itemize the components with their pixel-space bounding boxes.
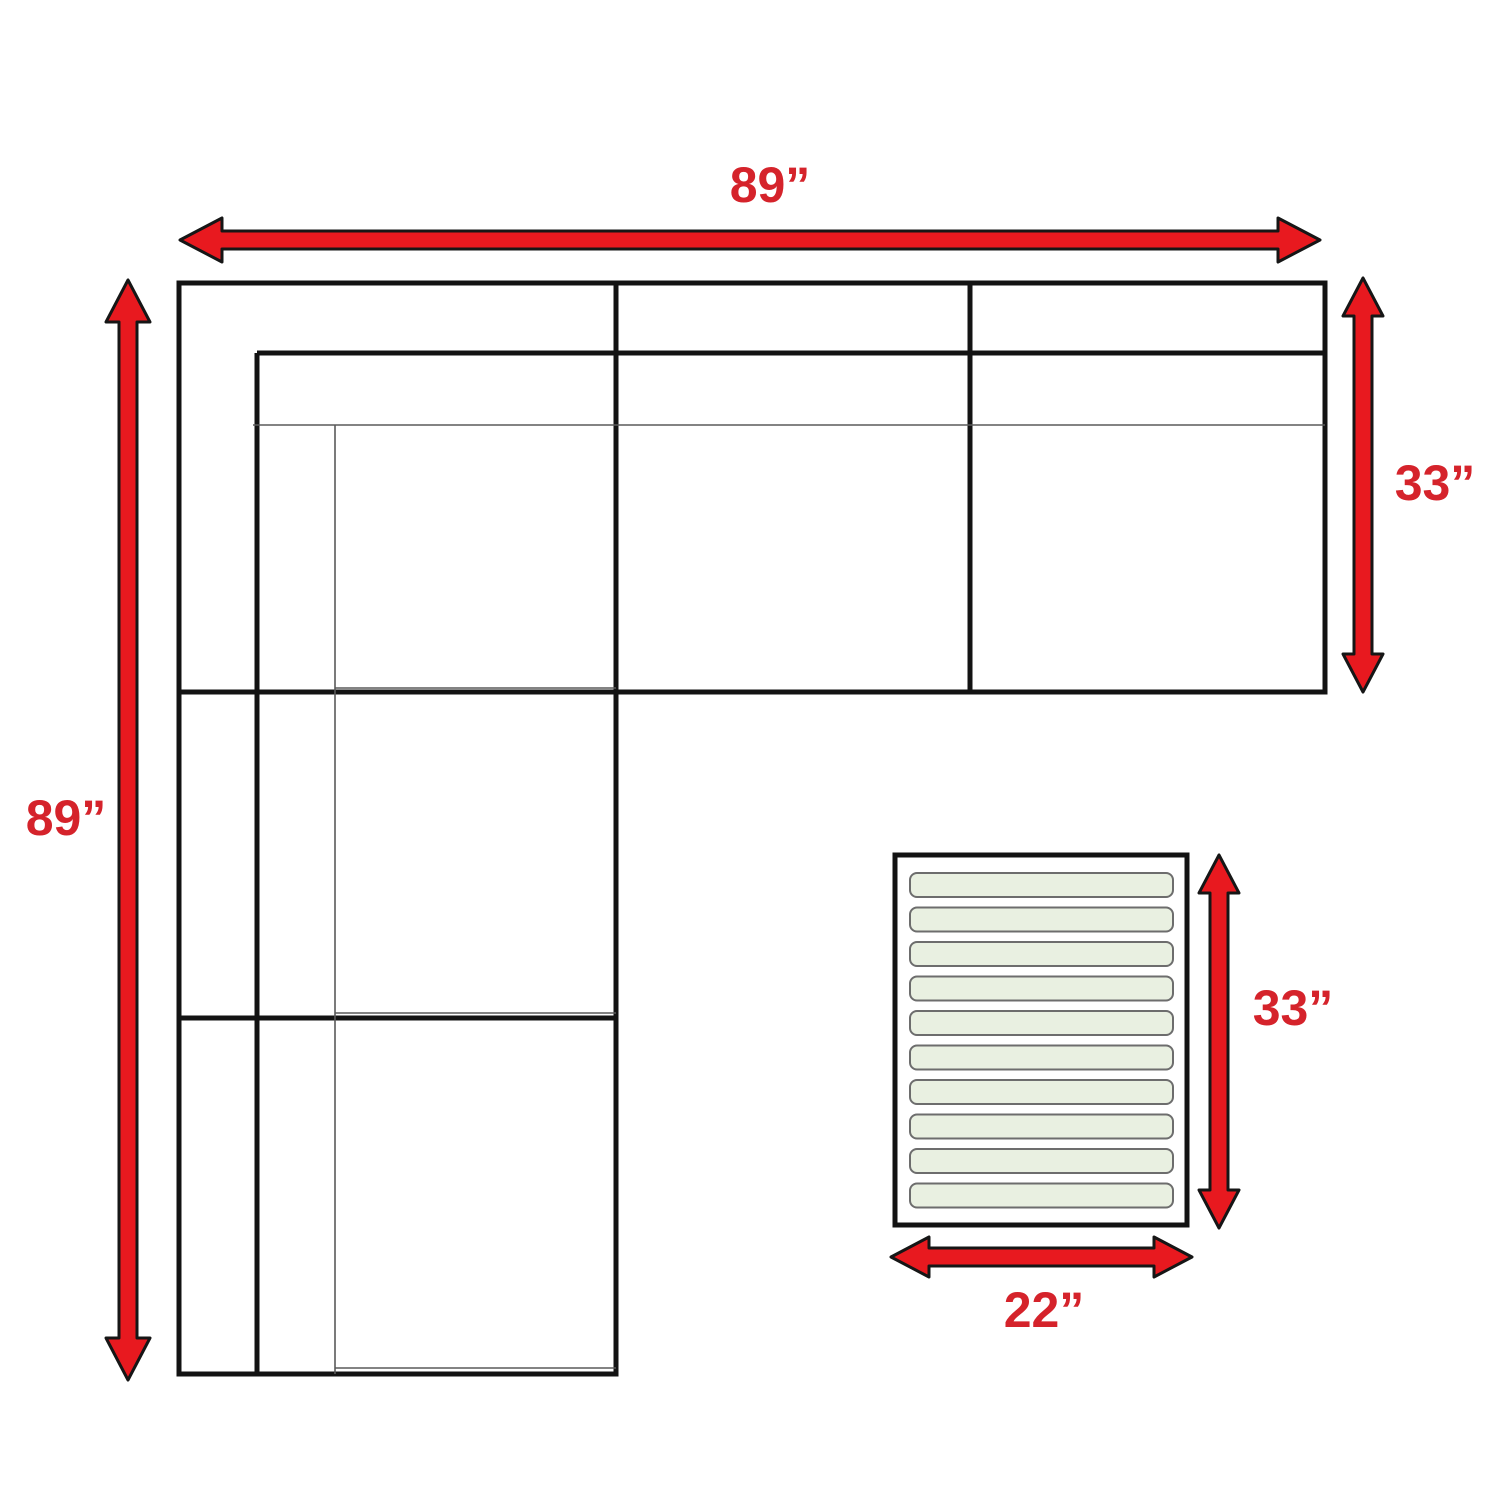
dimension-label-sofa-width: 89” xyxy=(730,157,811,213)
ottoman-slat xyxy=(910,1149,1173,1173)
diagram-page: 89” 89” 33” 33” 22” xyxy=(0,0,1500,1500)
ottoman-slat xyxy=(910,977,1173,1001)
ottoman-group xyxy=(895,855,1187,1225)
dimension-arrow-sofa-depth xyxy=(106,280,150,1380)
dimension-arrow-ottoman-depth xyxy=(1199,855,1239,1228)
ottoman-slat xyxy=(910,1046,1173,1070)
ottoman-slat xyxy=(910,908,1173,932)
dimension-arrow-ottoman-width xyxy=(891,1237,1192,1277)
ottoman-slat xyxy=(910,1184,1173,1208)
ottoman-slat xyxy=(910,1115,1173,1139)
diagram-canvas: 89” 89” 33” 33” 22” xyxy=(0,0,1500,1500)
ottoman-slat xyxy=(910,1080,1173,1104)
dimension-arrow-section-depth xyxy=(1343,278,1383,692)
dimension-label-sofa-depth: 89” xyxy=(26,790,107,846)
ottoman-slat xyxy=(910,1011,1173,1035)
dimension-arrow-sofa-width xyxy=(180,218,1320,262)
dimension-label-ottoman-width: 22” xyxy=(1004,1282,1085,1338)
dimension-label-ottoman-depth: 33” xyxy=(1253,980,1334,1036)
ottoman-slat xyxy=(910,873,1173,897)
ottoman-slat xyxy=(910,942,1173,966)
dimension-label-section-depth: 33” xyxy=(1395,455,1476,511)
